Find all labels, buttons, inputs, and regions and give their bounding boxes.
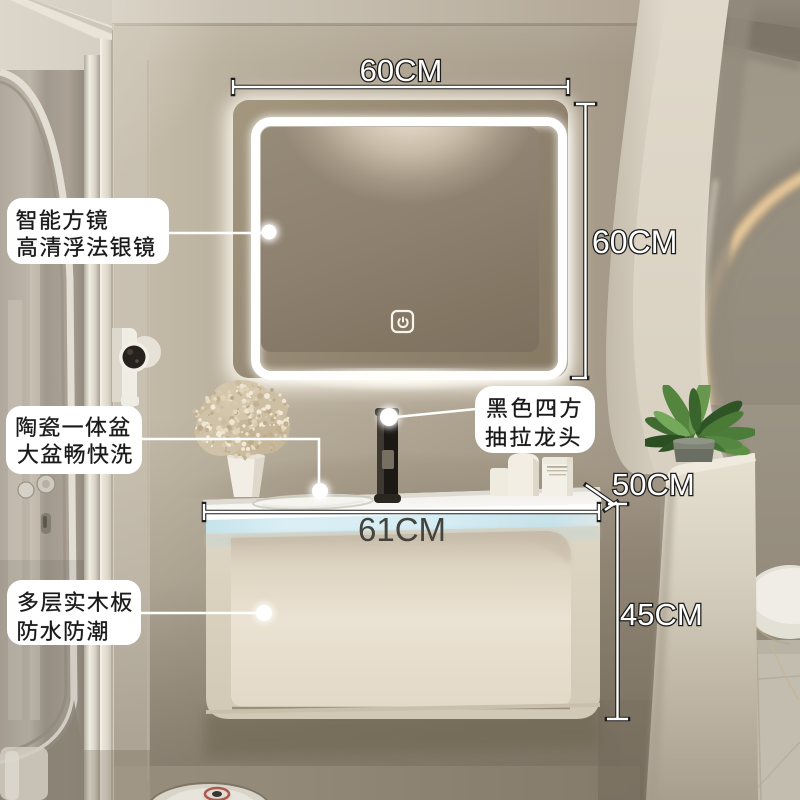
svg-text:61CM: 61CM: [358, 511, 446, 548]
svg-text:50CM: 50CM: [612, 467, 695, 502]
svg-text:45CM: 45CM: [620, 597, 703, 632]
svg-text:60CM: 60CM: [592, 224, 677, 260]
svg-text:60CM: 60CM: [360, 53, 443, 88]
